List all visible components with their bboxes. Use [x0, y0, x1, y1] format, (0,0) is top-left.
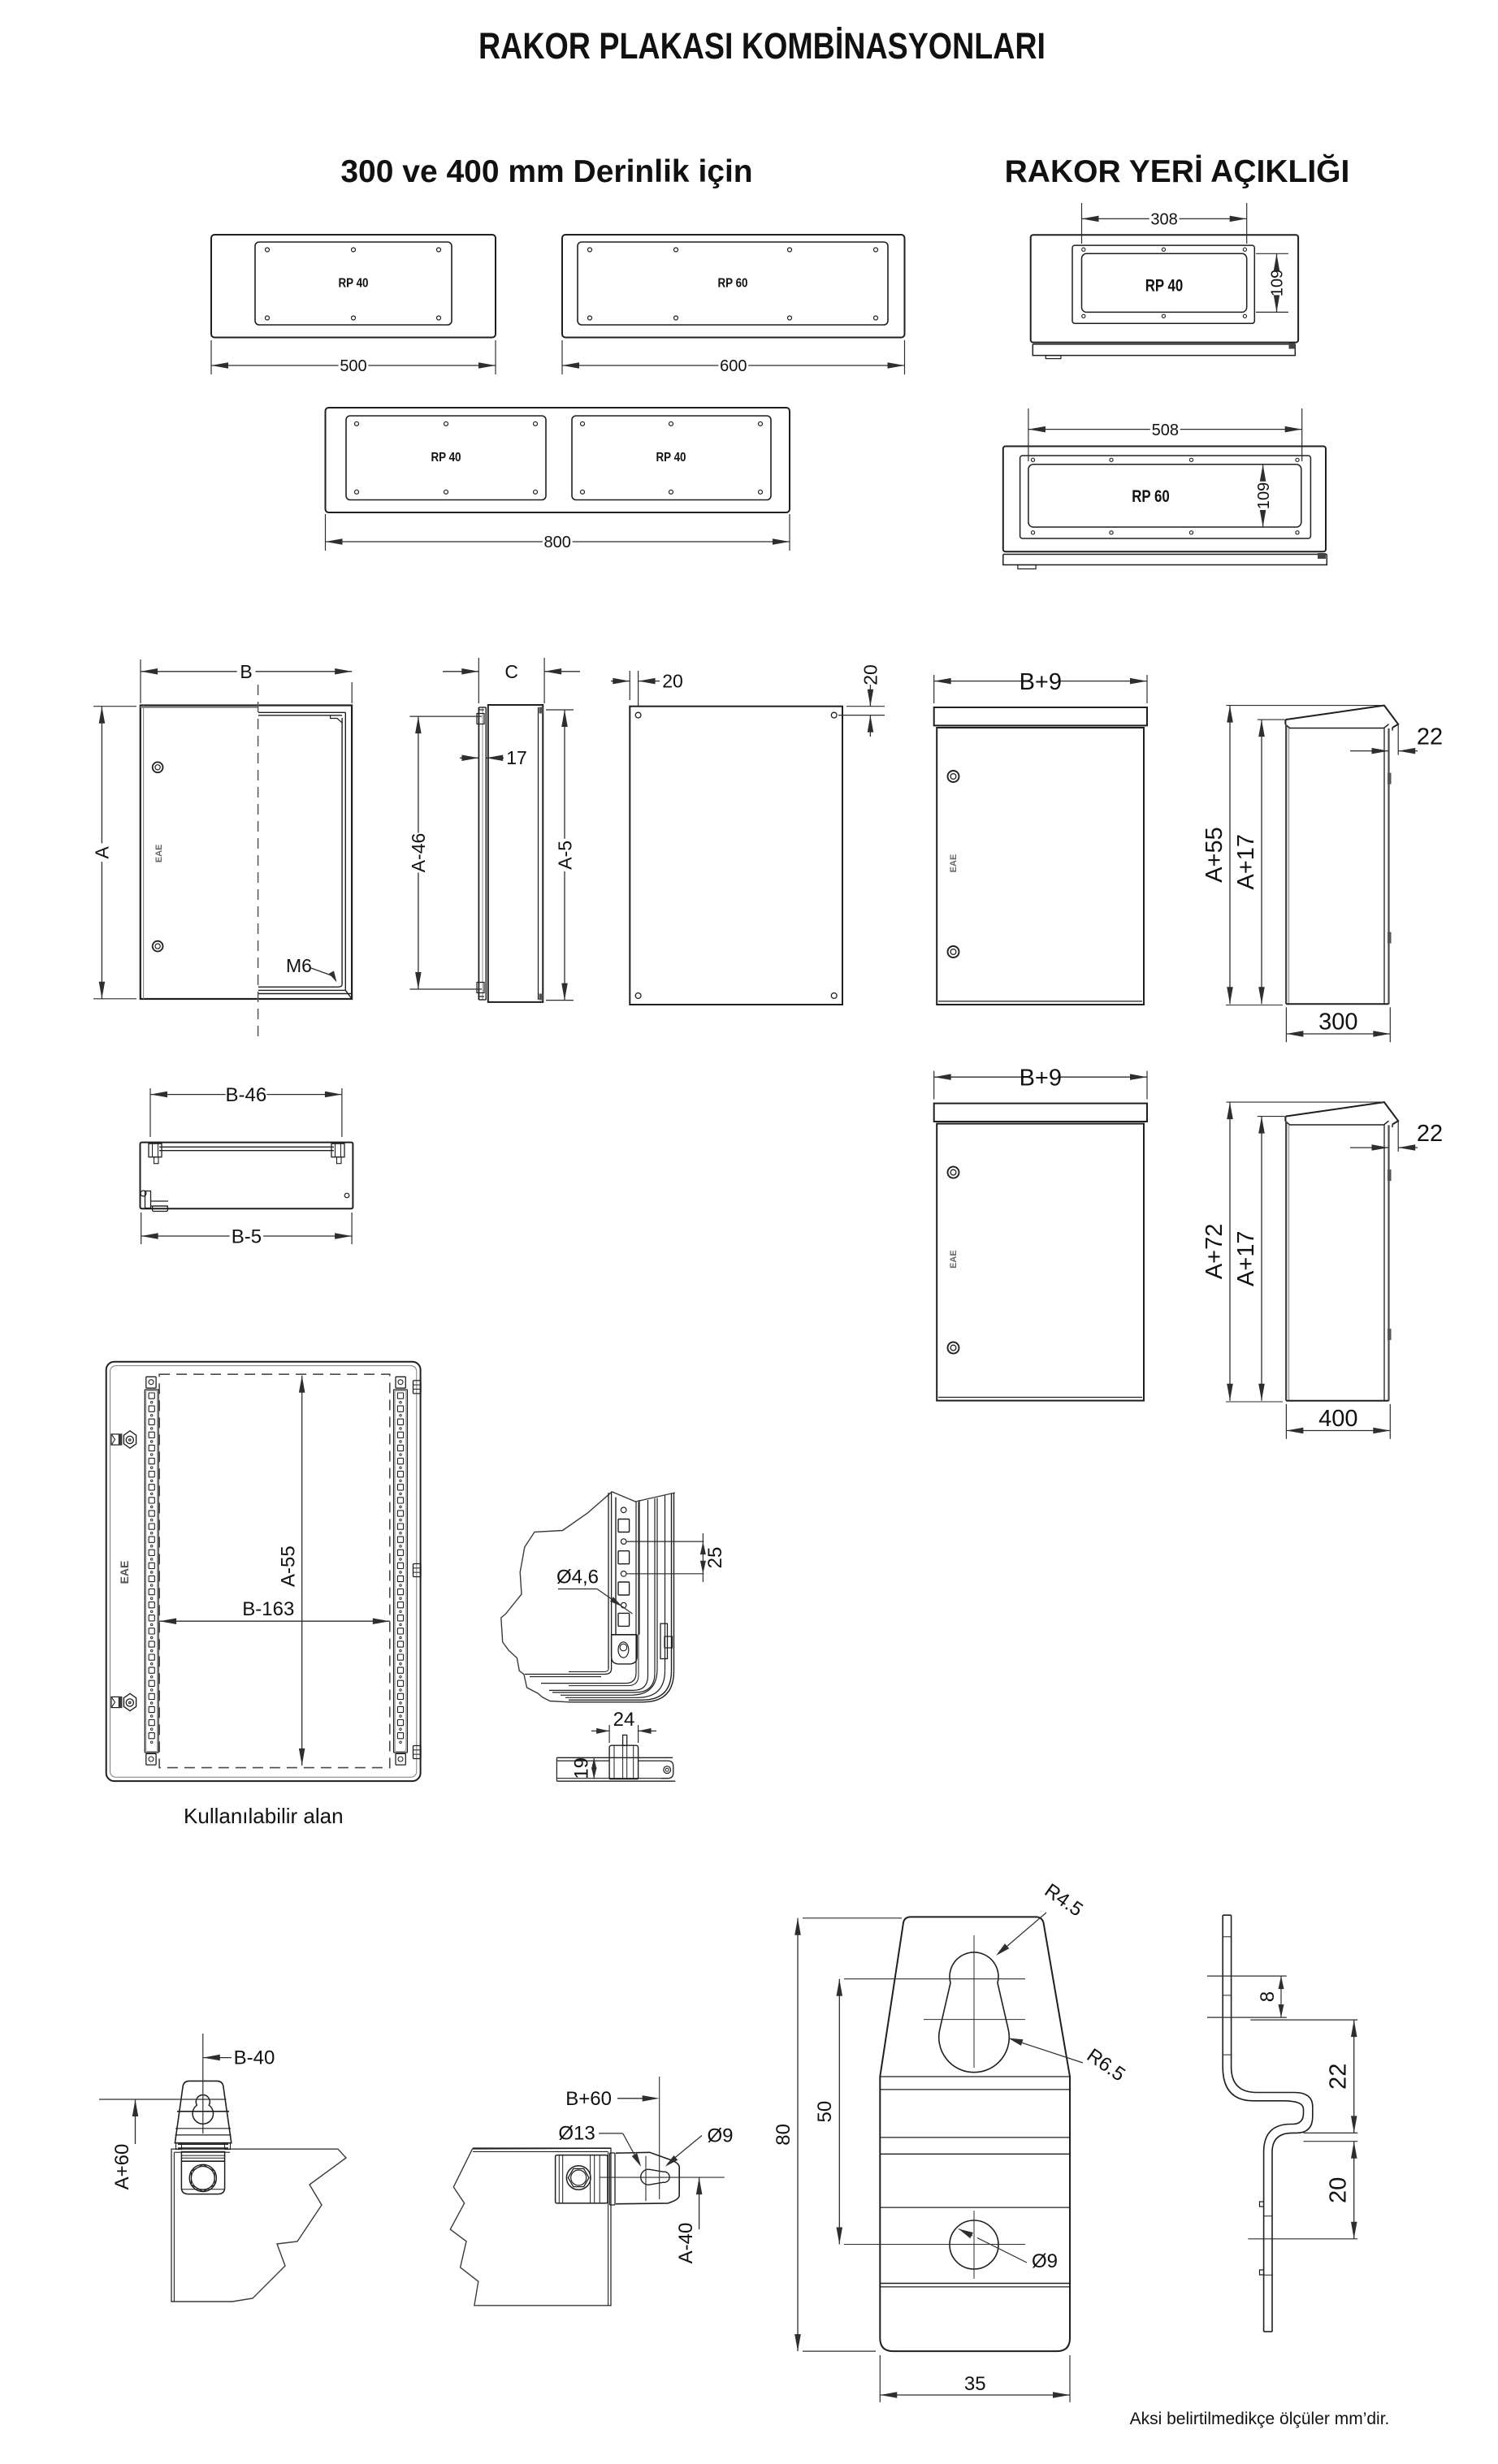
svg-text:RP 60: RP 60 — [1132, 487, 1170, 506]
svg-text:B-5: B-5 — [232, 1226, 262, 1248]
svg-text:80: 80 — [773, 2124, 794, 2146]
svg-text:A+17: A+17 — [1233, 834, 1259, 890]
svg-text:Ø9: Ø9 — [707, 2125, 733, 2146]
svg-text:35: 35 — [964, 2373, 986, 2395]
svg-text:Ø13: Ø13 — [558, 2123, 595, 2145]
svg-text:300: 300 — [1318, 1009, 1357, 1035]
svg-text:22: 22 — [1417, 1121, 1443, 1147]
svg-text:600: 600 — [720, 357, 747, 375]
svg-text:B-46: B-46 — [226, 1084, 267, 1106]
svg-text:20: 20 — [1326, 2177, 1352, 2203]
svg-text:EAE: EAE — [118, 1561, 131, 1584]
svg-text:A-46: A-46 — [408, 833, 429, 873]
svg-text:EAE: EAE — [949, 1250, 959, 1269]
svg-text:109: 109 — [1269, 270, 1287, 296]
svg-text:EAE: EAE — [154, 844, 164, 862]
svg-text:B: B — [240, 661, 252, 682]
svg-text:B+60: B+60 — [565, 2088, 612, 2110]
svg-text:17: 17 — [506, 747, 527, 768]
svg-text:109: 109 — [1255, 482, 1273, 509]
svg-text:8: 8 — [1257, 1991, 1279, 2002]
svg-text:400: 400 — [1318, 1406, 1357, 1432]
svg-text:RP 60: RP 60 — [718, 277, 748, 291]
svg-text:RAKOR PLAKASI KOMBİNASYONLARI: RAKOR PLAKASI KOMBİNASYONLARI — [478, 25, 1046, 67]
svg-text:20: 20 — [860, 664, 881, 685]
svg-text:RP 40: RP 40 — [1145, 277, 1184, 296]
svg-text:A-40: A-40 — [675, 2223, 697, 2264]
svg-text:24: 24 — [613, 1709, 635, 1731]
svg-text:B+9: B+9 — [1020, 669, 1062, 695]
svg-text:22: 22 — [1417, 724, 1443, 750]
svg-text:Kullanılabilir alan: Kullanılabilir alan — [184, 1804, 344, 1828]
svg-text:RP 40: RP 40 — [339, 277, 369, 291]
svg-text:300 ve 400 mm Derinlik için: 300 ve 400 mm Derinlik için — [340, 154, 752, 189]
svg-text:22: 22 — [1326, 2064, 1352, 2090]
svg-text:A: A — [92, 845, 113, 858]
svg-text:EAE: EAE — [949, 854, 959, 873]
svg-text:A-55: A-55 — [278, 1545, 300, 1587]
svg-text:RP 40: RP 40 — [431, 451, 461, 465]
svg-text:20: 20 — [662, 671, 683, 692]
svg-text:B+9: B+9 — [1020, 1066, 1062, 1092]
svg-text:A+72: A+72 — [1201, 1224, 1227, 1280]
svg-text:A+60: A+60 — [111, 2144, 133, 2190]
svg-text:Ø4,6: Ø4,6 — [556, 1567, 599, 1589]
svg-text:19: 19 — [571, 1757, 593, 1779]
svg-text:A+55: A+55 — [1201, 827, 1227, 883]
svg-text:M6: M6 — [286, 955, 312, 976]
svg-text:25: 25 — [704, 1547, 726, 1569]
svg-text:A+17: A+17 — [1233, 1230, 1259, 1286]
svg-text:RP 40: RP 40 — [656, 451, 686, 465]
svg-text:RAKOR YERİ AÇIKLIĞI: RAKOR YERİ AÇIKLIĞI — [1005, 153, 1350, 189]
svg-text:Ø9: Ø9 — [1032, 2250, 1058, 2272]
svg-text:308: 308 — [1150, 211, 1177, 229]
svg-text:B-40: B-40 — [234, 2047, 275, 2069]
svg-text:C: C — [504, 661, 518, 682]
svg-text:Aksi belirtilmedikçe ölçüler m: Aksi belirtilmedikçe ölçüler mm’dir. — [1130, 2410, 1390, 2428]
svg-text:508: 508 — [1152, 421, 1179, 439]
svg-text:A-5: A-5 — [554, 841, 575, 870]
svg-text:50: 50 — [814, 2101, 836, 2123]
svg-text:800: 800 — [544, 534, 571, 551]
svg-text:500: 500 — [340, 357, 366, 375]
svg-text:B-163: B-163 — [242, 1598, 294, 1620]
